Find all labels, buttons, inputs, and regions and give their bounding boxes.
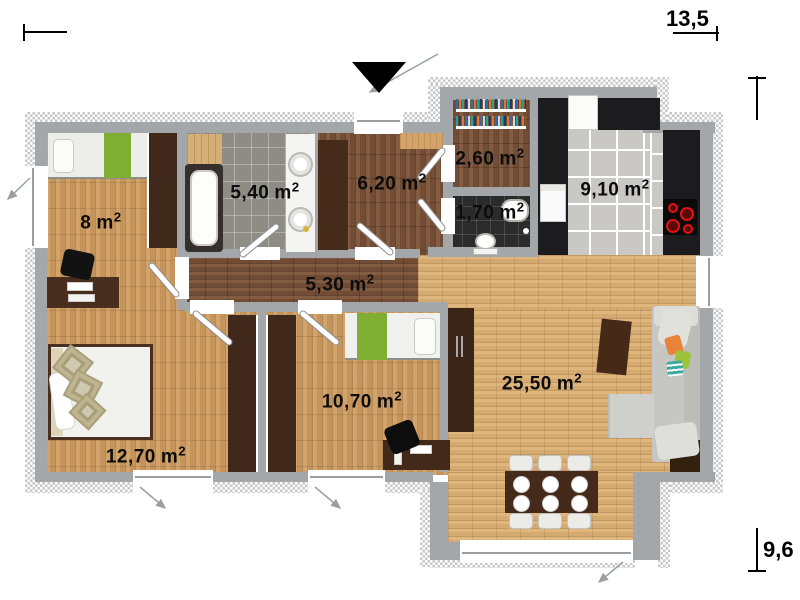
annotations-layer [0, 0, 800, 600]
room-area-label-closet: 2,60m2 [455, 145, 524, 170]
entrance-arrow-icon [352, 62, 406, 93]
dimension-lines [23, 24, 766, 572]
window-opening-arrows [8, 54, 623, 582]
room-area-label-kitchen: 9,10m2 [580, 176, 649, 201]
room-area-label-living-room: 25,50m2 [502, 370, 582, 395]
room-area-label-bedroom-3: 10,70m2 [322, 388, 402, 413]
room-area-label-bedroom-1: 8m2 [80, 209, 121, 234]
plan-depth-label: 9,6 [763, 537, 794, 563]
room-area-label-corridor: 5,30m2 [305, 271, 374, 296]
room-area-label-bedroom-2: 12,70m2 [106, 443, 186, 468]
room-area-label-wc: 1,70m2 [455, 199, 524, 224]
room-area-label-entrance-hall: 6,20m2 [357, 170, 426, 195]
room-area-label-bathroom: 5,40m2 [230, 179, 299, 204]
plan-width-label: 13,5 [666, 6, 709, 32]
floor-plan: 8m2 5,40m2 6,20m2 2,60m2 1,70m2 9,10m2 5… [0, 0, 800, 600]
